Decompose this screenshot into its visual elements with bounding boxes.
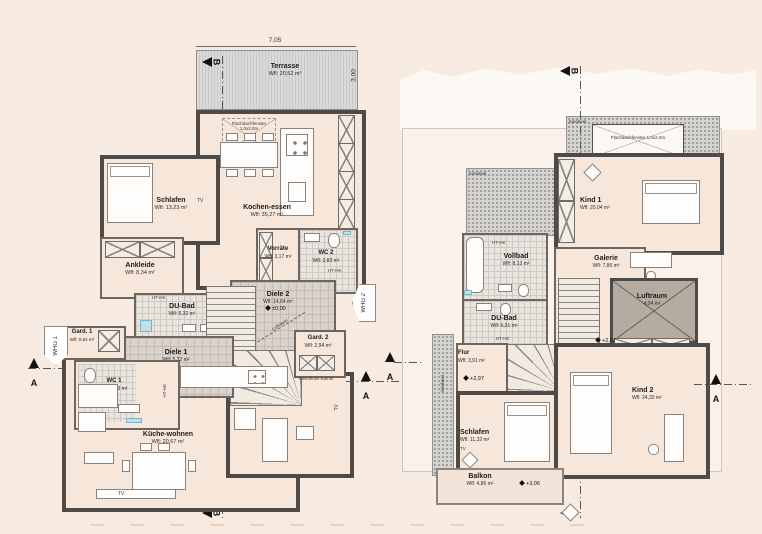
- roof-window-label: Flachdachfenster 1,0x2,0m: [597, 135, 679, 140]
- room-du-bad-label: DU-Bad Wfl: 6,32 m²: [150, 302, 214, 318]
- wardrobe: [558, 159, 575, 201]
- deco-diamond: [561, 503, 579, 521]
- wardrobe: [558, 201, 575, 243]
- room-kind2-label: Kind 2 Wfl: 24,33 m²: [632, 386, 696, 402]
- chair: [244, 133, 256, 141]
- desk: [630, 252, 672, 268]
- desk: [664, 414, 684, 462]
- room-area: Wfl: 6,32 m²: [150, 311, 214, 318]
- kiesbeet-strip-left: Kiesbeet: [432, 334, 454, 476]
- section-marker-a-right: A: [360, 368, 372, 404]
- kitchen-counter: [180, 366, 288, 388]
- room-name: Gard. 1: [64, 329, 100, 337]
- room-name: Gard. 2: [296, 335, 340, 343]
- room-gard2-label: Gard. 2 Wfl: 2,94 m²: [296, 335, 340, 349]
- ht-hk-label: HT-HK: [162, 384, 167, 398]
- room-area: Wfl: 0,84 m²: [64, 337, 100, 343]
- room-name: Schlafen: [460, 428, 512, 437]
- room-area: Wfl: 3,17 m²: [258, 254, 298, 261]
- ht-hk-label: HT-HK: [496, 336, 510, 341]
- wardrobe: [140, 241, 175, 258]
- room-area: Wfl: 4,86 m²: [454, 481, 506, 488]
- section-arrow-icon: [29, 358, 39, 368]
- room-name: Kochen-essen: [212, 203, 322, 212]
- roof-window-text: Flachdachfenster: [611, 135, 646, 140]
- chair: [648, 444, 659, 455]
- cupboard: [338, 171, 355, 201]
- window-sill: [126, 418, 142, 423]
- ht-hk-label: HT-HK: [328, 268, 342, 273]
- dimension-width: 7,05: [250, 37, 300, 44]
- tv-label: TV: [460, 446, 466, 451]
- roof-window-size: 1,0x2,0m: [647, 135, 666, 140]
- room-name: DU-Bad: [150, 302, 214, 311]
- room-area: Wfl: 7,86 m²: [576, 263, 636, 270]
- whg2-label: WHG 2: [361, 293, 367, 313]
- room-flur-label: Flur Wfl: 3,91 m²: [458, 350, 502, 364]
- section-letter: A: [31, 378, 38, 388]
- room-area: Wfl: 2,83 m²: [302, 258, 350, 265]
- chair: [140, 443, 152, 451]
- toilet: [328, 233, 340, 248]
- room-area: Wfl: 3,91 m²: [458, 358, 502, 365]
- ht-hk-label: HT-HK: [152, 295, 166, 300]
- floor-plan-left: 7,05 3,00 Terrasse Wfl: 20,52 m² B B Fla…: [0, 0, 400, 534]
- anschluss-kamin-label: Anschluss Kamin: [296, 376, 336, 381]
- room-name: WC 2: [302, 250, 350, 258]
- level-marker: +3,06: [520, 481, 540, 487]
- room-name: Luftraum: [628, 292, 676, 301]
- chair: [158, 443, 170, 451]
- sink: [498, 284, 512, 292]
- level-value: ±0,00: [272, 306, 286, 312]
- island-sink: [288, 182, 306, 202]
- room-area: Wfl: 6,31 m²: [476, 323, 532, 330]
- section-letter: B: [569, 68, 579, 75]
- level-value: +3,06: [526, 481, 540, 487]
- bed: [570, 372, 612, 454]
- level-value: +2,97: [470, 376, 484, 382]
- cupboard: [338, 199, 355, 229]
- armchair: [234, 408, 256, 430]
- room-name: Diele 1: [148, 348, 204, 357]
- room-name: DU-Bad: [476, 314, 532, 323]
- sofa: [78, 384, 118, 408]
- room-area: Wfl: 11,32 m²: [460, 437, 512, 444]
- ht-hk-label: HT-HK: [492, 240, 506, 245]
- void-luftraum: [610, 278, 698, 344]
- room-name: Galerie: [576, 254, 636, 263]
- coffee-table: [84, 452, 114, 464]
- kiesbeet-label: Kiesbeet: [440, 375, 445, 393]
- cupboard: [338, 115, 355, 145]
- room-balkon-label: Balkon Wfl: 4,86 m²: [454, 472, 506, 488]
- chair: [122, 460, 130, 472]
- level-marker-icon: [519, 480, 525, 486]
- coffee-table: [296, 426, 314, 440]
- section-arrow-icon: [385, 352, 395, 362]
- bed: [642, 180, 700, 224]
- window-sill: [464, 290, 472, 295]
- sink: [476, 303, 492, 311]
- sofa: [262, 418, 288, 462]
- room-area: Wfl: 8,34 m²: [108, 270, 172, 277]
- room-name: Vorräte: [258, 246, 298, 254]
- room-gard1-label: Gard. 1 Wfl: 0,84 m²: [64, 329, 100, 343]
- shower: [140, 320, 152, 332]
- room-name: Kind 1: [580, 196, 644, 205]
- section-letter: A: [713, 394, 720, 404]
- room-name: Vollbad: [488, 252, 544, 261]
- room-area: Wfl: 20,04 m²: [580, 205, 644, 212]
- sink: [118, 404, 140, 413]
- room-name: Terrasse: [240, 62, 330, 71]
- room-area: Wfl: 8,13 m²: [488, 261, 544, 268]
- room-ankleide-label: Ankleide Wfl: 8,34 m²: [108, 261, 172, 277]
- room-name: Ankleide: [108, 261, 172, 270]
- bathtub: [466, 237, 484, 293]
- window-sill: [343, 231, 351, 235]
- sofa: [78, 412, 106, 432]
- level-marker: ±0,00: [266, 306, 286, 312]
- wardrobe: [317, 355, 335, 371]
- wardrobe: [299, 355, 317, 371]
- level-marker: +2,97: [464, 376, 484, 382]
- room-name: Flur: [458, 350, 502, 358]
- room-wc2-label: WC 2 Wfl: 2,83 m²: [302, 250, 350, 264]
- section-line-a: [694, 384, 754, 385]
- whg1-label: WHG 1: [53, 336, 59, 356]
- chair: [262, 169, 274, 177]
- roof-window-size: 1,0x2,0m: [240, 126, 259, 131]
- wardrobe: [105, 241, 140, 258]
- tv-label: TV: [334, 404, 340, 410]
- dining-table: [220, 142, 278, 168]
- sink: [304, 233, 320, 242]
- room-schlafen-og-label: Schlafen Wfl: 11,32 m²: [460, 428, 512, 444]
- tv-label: TV: [118, 491, 124, 497]
- dimension-line: [196, 46, 356, 47]
- kiesbeet-label: Kiesbeet: [569, 119, 587, 124]
- room-name: Schlafen: [136, 196, 206, 205]
- dining-table: [132, 452, 186, 490]
- room-terrasse-label: Terrasse Wfl: 20,52 m²: [240, 62, 330, 78]
- sink: [182, 324, 196, 332]
- room-kind1-label: Kind 1 Wfl: 20,04 m²: [580, 196, 644, 212]
- room-name: Küche-wohnen: [118, 430, 218, 439]
- scale-marks: [90, 524, 590, 526]
- room-name: Kind 2: [632, 386, 696, 395]
- chair: [244, 169, 256, 177]
- wardrobe: [98, 330, 120, 352]
- bed: [107, 163, 153, 223]
- room-schlafen-label: Schlafen Wfl: 13,23 m²: [136, 196, 206, 212]
- level-marker-icon: [595, 337, 601, 343]
- section-marker-a-right: A: [710, 371, 722, 407]
- room-area: Wfl: 2,94 m²: [296, 343, 340, 350]
- room-area: 4,04 m²: [628, 301, 676, 308]
- section-letter: B: [211, 59, 221, 66]
- section-letter: A: [363, 391, 370, 401]
- section-arrow-icon: [711, 374, 721, 384]
- room-kochen-essen-label: Kochen-essen Wfl: 35,27 m²: [212, 203, 322, 219]
- room-luftraum-label: Luftraum 4,04 m²: [628, 292, 676, 308]
- cupboard: [338, 143, 355, 173]
- section-marker-b-top: B: [202, 57, 220, 67]
- kiesbeet-area-left: [466, 168, 560, 236]
- chair: [226, 169, 238, 177]
- room-vollbad-label: Vollbad Wfl: 8,13 m²: [488, 252, 544, 268]
- chair: [226, 133, 238, 141]
- section-marker-b-top: B: [560, 66, 578, 76]
- floor-plan-right: Kiesbeet Flachdachfenster 1,0x2,0m Kiesb…: [380, 0, 762, 534]
- chair: [188, 460, 196, 472]
- section-letter: A: [387, 372, 394, 382]
- level-marker-icon: [265, 305, 271, 311]
- room-vorraete-label: Vorräte Wfl: 3,17 m²: [258, 246, 298, 260]
- chair: [262, 133, 274, 141]
- roof-window-label: Flachdachfenster 1,0x2,0m: [225, 121, 273, 131]
- room-area: Wfl: 13,23 m²: [136, 205, 206, 212]
- floor-plan-sheet: { "left": { "dims": { "width": "7,05", "…: [0, 0, 762, 534]
- room-area: Wfl: 35,27 m²: [212, 212, 322, 219]
- section-line-a: [394, 362, 424, 363]
- room-du-bad-og-label: DU-Bad Wfl: 6,31 m²: [476, 314, 532, 330]
- section-marker-a-left: A: [28, 355, 40, 391]
- dimension-depth: 3,00: [351, 66, 358, 86]
- toilet: [518, 284, 529, 297]
- tv-label: TV: [197, 198, 203, 204]
- section-arrow-icon: [361, 371, 371, 381]
- room-galerie-label: Galerie Wfl: 7,86 m²: [576, 254, 636, 270]
- cooktop: [286, 134, 308, 156]
- room-area: Wfl: 24,33 m²: [632, 395, 696, 402]
- tv-sideboard: [96, 489, 176, 499]
- kiesbeet-label: Kiesbeet: [469, 171, 487, 176]
- room-name: Balkon: [454, 472, 506, 481]
- level-marker-icon: [463, 375, 469, 381]
- cooktop: [248, 370, 266, 384]
- room-area: Wfl: 20,52 m²: [240, 71, 330, 78]
- section-marker-a-left: A: [384, 349, 396, 385]
